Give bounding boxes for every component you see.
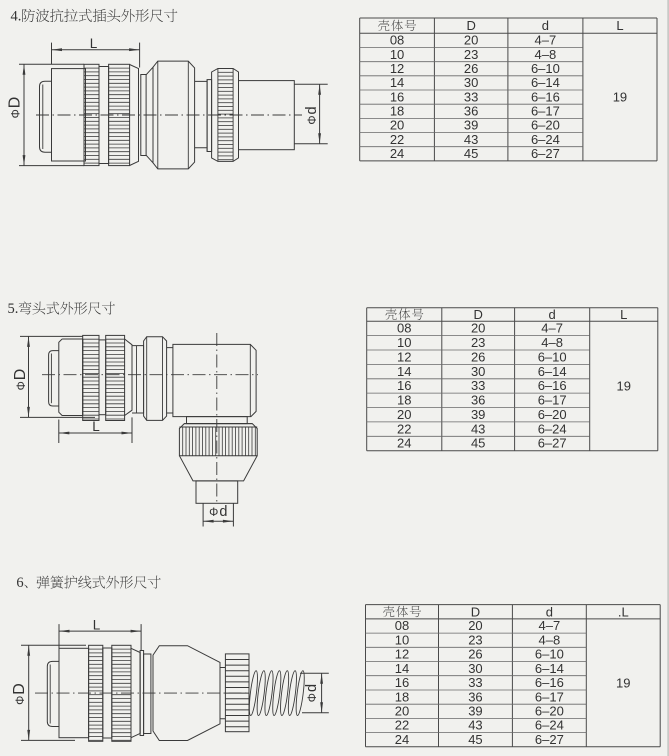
svg-text:43: 43 (464, 132, 478, 147)
svg-text:26: 26 (464, 61, 478, 76)
svg-text:5.: 5. (8, 301, 19, 317)
svg-text:6–27: 6–27 (531, 146, 560, 161)
svg-text:43: 43 (468, 718, 482, 733)
svg-text:L: L (616, 18, 623, 33)
svg-text:22: 22 (390, 132, 404, 147)
svg-text:30: 30 (468, 661, 482, 676)
svg-text:16: 16 (395, 675, 409, 690)
svg-text:36: 36 (471, 393, 485, 408)
svg-text:19: 19 (613, 90, 627, 105)
svg-text:16: 16 (397, 378, 411, 393)
svg-text:4–8: 4–8 (541, 335, 563, 350)
svg-text:22: 22 (397, 421, 411, 436)
svg-text:26: 26 (468, 647, 482, 662)
svg-text:14: 14 (397, 364, 411, 379)
svg-text:08: 08 (390, 33, 404, 48)
svg-text:d: d (542, 18, 549, 33)
svg-text:L: L (620, 307, 627, 322)
svg-text:45: 45 (468, 732, 482, 747)
svg-text:23: 23 (471, 335, 485, 350)
svg-text:24: 24 (395, 732, 409, 747)
svg-text:24: 24 (390, 146, 404, 161)
svg-text:12: 12 (397, 349, 411, 364)
svg-text:20: 20 (395, 703, 409, 718)
svg-text:4–8: 4–8 (535, 47, 557, 62)
svg-text:20: 20 (390, 118, 404, 133)
svg-text:6–27: 6–27 (538, 436, 567, 451)
svg-text:4–7: 4–7 (535, 33, 557, 48)
svg-text:4–7: 4–7 (541, 321, 563, 336)
svg-text:4.: 4. (11, 9, 22, 25)
svg-text:Φd: Φd (304, 106, 320, 124)
svg-text:12: 12 (395, 647, 409, 662)
svg-text:20: 20 (397, 407, 411, 422)
svg-text:08: 08 (395, 618, 409, 633)
svg-text:39: 39 (468, 703, 482, 718)
svg-text:33: 33 (471, 378, 485, 393)
svg-text:39: 39 (471, 407, 485, 422)
svg-text:23: 23 (468, 632, 482, 647)
svg-text:6–20: 6–20 (535, 703, 564, 718)
svg-text:d: d (546, 604, 553, 619)
svg-text:36: 36 (464, 103, 478, 118)
svg-text:6: 6 (16, 575, 23, 591)
svg-text:6–16: 6–16 (538, 378, 567, 393)
svg-text:6–27: 6–27 (535, 732, 564, 747)
svg-text:12: 12 (390, 61, 404, 76)
svg-text:20: 20 (471, 321, 485, 336)
svg-text:L: L (90, 36, 98, 51)
svg-text:23: 23 (464, 47, 478, 62)
svg-text:36: 36 (468, 689, 482, 704)
svg-text:6–17: 6–17 (538, 393, 567, 408)
svg-text:14: 14 (390, 75, 404, 90)
svg-text:.L: .L (618, 604, 629, 619)
svg-text:22: 22 (395, 718, 409, 733)
svg-text:L: L (93, 617, 101, 632)
svg-text:6–20: 6–20 (538, 407, 567, 422)
svg-text:45: 45 (464, 146, 478, 161)
svg-text:6–17: 6–17 (535, 689, 564, 704)
svg-text:6–14: 6–14 (531, 75, 560, 90)
svg-text:33: 33 (464, 89, 478, 104)
svg-text:20: 20 (468, 618, 482, 633)
svg-text:6–10: 6–10 (535, 647, 564, 662)
svg-text:26: 26 (471, 349, 485, 364)
svg-text:43: 43 (471, 421, 485, 436)
svg-text:Φd: Φd (209, 504, 227, 520)
svg-text:30: 30 (471, 364, 485, 379)
svg-text:4–8: 4–8 (538, 632, 560, 647)
svg-text:D: D (471, 604, 480, 619)
svg-text:20: 20 (464, 33, 478, 48)
svg-text:10: 10 (395, 632, 409, 647)
svg-text:6–16: 6–16 (535, 675, 564, 690)
svg-text:6–10: 6–10 (531, 61, 560, 76)
svg-text:18: 18 (395, 689, 409, 704)
svg-text:14: 14 (395, 661, 409, 676)
svg-text:6–14: 6–14 (538, 364, 567, 379)
svg-text:10: 10 (397, 335, 411, 350)
svg-text:30: 30 (464, 75, 478, 90)
svg-text:10: 10 (390, 47, 404, 62)
svg-text:6–14: 6–14 (535, 661, 564, 676)
svg-text:4–7: 4–7 (538, 618, 560, 633)
svg-text:6–20: 6–20 (531, 118, 560, 133)
svg-text:18: 18 (397, 393, 411, 408)
svg-text:19: 19 (616, 675, 630, 690)
svg-text:L: L (92, 419, 100, 434)
svg-text:6–17: 6–17 (531, 103, 560, 118)
svg-text:45: 45 (471, 436, 485, 451)
svg-text:6–24: 6–24 (538, 421, 567, 436)
svg-text:39: 39 (464, 118, 478, 133)
svg-text:6–24: 6–24 (535, 718, 564, 733)
svg-text:6–24: 6–24 (531, 132, 560, 147)
svg-text:33: 33 (468, 675, 482, 690)
svg-text:18: 18 (390, 103, 404, 118)
svg-text:16: 16 (390, 89, 404, 104)
svg-text:6–10: 6–10 (538, 349, 567, 364)
svg-text:D: D (466, 18, 475, 33)
svg-text:6–16: 6–16 (531, 89, 560, 104)
svg-text:19: 19 (617, 378, 631, 393)
svg-text:24: 24 (397, 436, 411, 451)
svg-text:Φd: Φd (304, 684, 320, 702)
svg-text:08: 08 (397, 321, 411, 336)
